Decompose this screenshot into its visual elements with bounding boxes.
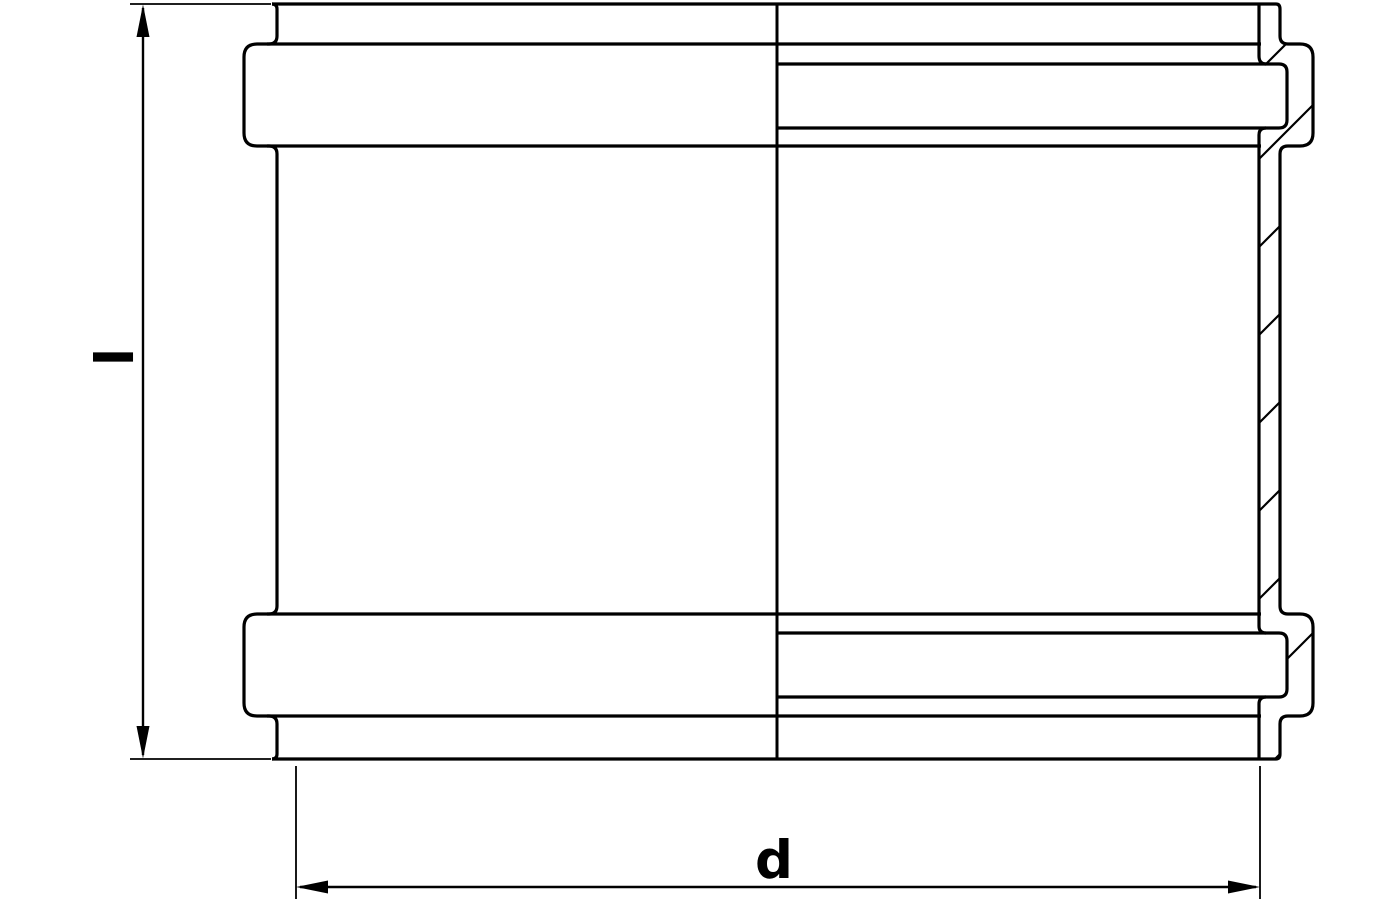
- dimension-label-length: l: [85, 348, 146, 366]
- drawing-background: [0, 0, 1400, 900]
- dimension-label-diameter: d: [755, 830, 793, 891]
- pipe-coupling-half-section-drawing: l d: [0, 0, 1400, 900]
- technical-drawing-canvas: l d: [0, 0, 1400, 900]
